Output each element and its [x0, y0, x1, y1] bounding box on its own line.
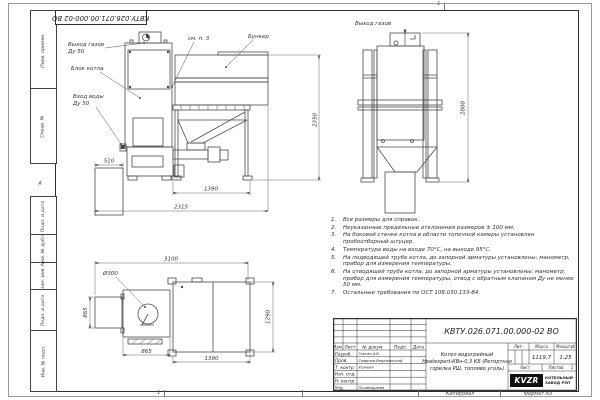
dim-1290: 1290	[266, 310, 272, 324]
note-item: 3.На боковой стенке котла в области топо…	[331, 232, 578, 245]
note-item: 4.Температура воды на входе 70°С, на вых…	[331, 247, 578, 254]
col-list: Лист	[344, 344, 356, 350]
zone-marker-bottom: 1	[157, 390, 161, 396]
note-item: 7.Остальные требования по ОСТ 108.030.13…	[331, 290, 578, 297]
col-sign: Подп.	[394, 344, 407, 350]
frame-cell-podp-data-2: Подп. и дата	[30, 289, 57, 332]
frame-label: Подп. и дата	[41, 295, 46, 326]
product-name-1: Котел водогрейный	[441, 352, 494, 358]
note-number: 4.	[331, 247, 343, 254]
frame-cell-vzam-inv: Взам. инв. №	[30, 262, 57, 291]
doc-number-rotated-box: КВТУ.026.071.00.000-02 ВО	[55, 10, 147, 25]
label-water-in-dn: Ду 50	[72, 101, 90, 107]
dim-1390-plan: 1390	[205, 356, 219, 362]
note-text: Все размеры для справок.	[343, 217, 578, 224]
note-number: 5.	[331, 255, 343, 268]
bottom-margin-tick	[418, 390, 419, 397]
row-label-tkontr: Т. контр.	[335, 365, 355, 371]
label-see-note: см. п. 3	[188, 36, 210, 42]
dim-1390: 1390	[204, 187, 218, 193]
kvzr-logo-text: KVZR	[514, 376, 538, 385]
zone-tick-bottom	[164, 390, 165, 397]
scale-value: 1:25	[559, 355, 572, 361]
note-item: 2.Неуказанные предельные отклонения разм…	[331, 225, 578, 232]
fan-icon	[146, 34, 150, 39]
frame-cell-inv-podl: Инв. № подл.	[30, 330, 57, 392]
bottom-margin-tick	[500, 390, 501, 397]
note-item: 6.На отводящей трубе котла, до запорной …	[331, 269, 578, 289]
label-gas-out: Выход газов	[68, 42, 104, 48]
frame-label: Подп. и дата	[41, 200, 46, 231]
col-izm: Изм.	[333, 344, 343, 350]
label-gas-out-dn: Ду 50	[67, 49, 85, 55]
note-number: 3.	[331, 232, 343, 245]
front-view-texts: 510 1390 2315 2350 Выход газов Ду 50 Бло…	[67, 34, 319, 211]
front-view-drawing	[95, 32, 268, 215]
label-boiler-block: Блок котла	[71, 66, 104, 72]
note-text: На отводящей трубе котла, до запорной ар…	[343, 269, 578, 289]
label-water-in: Вход воды	[73, 94, 104, 100]
frame-label: Взам. инв. №	[41, 261, 46, 292]
label-bunker: Бункер	[248, 34, 269, 40]
col-doc: № докум.	[361, 344, 383, 350]
dim-2800: 2800	[461, 101, 467, 115]
zone-marker-top: 1	[437, 1, 441, 7]
note-text: На боковой стенке котла в области топочн…	[343, 232, 578, 245]
frame-label: Инв. № подл.	[41, 345, 46, 377]
side-view-drawing	[358, 33, 442, 213]
technical-notes: 1.Все размеры для справок. 2.Неуказанные…	[331, 217, 578, 298]
company-name-2: ЗАВОД РЭП	[545, 380, 571, 385]
row-label-razrab: Разраб.	[335, 351, 352, 357]
row-label-nachotd: Нач. отд.	[335, 372, 356, 378]
front-view: 510 1390 2315 2350 Выход газов Ду 50 Бло…	[60, 25, 340, 221]
row-label-prov: Пров.	[335, 358, 348, 364]
row-name-utv: Полиморлова	[359, 386, 385, 390]
dim-3100: 3100	[164, 257, 178, 263]
bottom-margin-tick	[302, 390, 303, 397]
plan-view-drawing	[95, 278, 254, 356]
note-number: 7.	[331, 290, 343, 297]
row-name-razrab: Гергин А.В.	[359, 352, 380, 356]
product-name-3: горелка РШ, топливо уголь)	[430, 366, 504, 372]
format-label: Формат А3	[506, 391, 570, 397]
mass-label: Масса	[535, 344, 548, 349]
sheets-label: Листов	[548, 365, 565, 370]
frame-label: Перв. примен.	[41, 33, 46, 68]
frame-label: Справ. №	[41, 115, 46, 137]
label-gas-out-side: Выход газов	[355, 21, 391, 27]
label-flue-diameter: Ø300	[102, 270, 118, 277]
scale-label: Масштаб	[556, 344, 576, 349]
frame-cell-inv-dubl: Инв. № дубл.	[30, 234, 57, 264]
zone-tick-top	[444, 3, 445, 10]
dim-2350: 2350	[313, 113, 319, 127]
side-view: Выход газов 2800	[350, 10, 480, 220]
dim-510: 510	[104, 159, 115, 165]
copied-label: Копировал	[428, 391, 492, 397]
note-item: 1.Все размеры для справок.	[331, 217, 578, 224]
frame-cell-podp-data-1: Подп. и дата	[30, 196, 57, 236]
dim-865-bottom: 865	[141, 349, 152, 355]
doc-number-rotated: КВТУ.026.071.00.000-02 ВО	[52, 14, 149, 22]
plan-view: 3100 Ø300 865 865 1390 1290	[60, 245, 350, 372]
note-text: Температура воды на входе 70°С, на выход…	[343, 247, 578, 254]
product-name-2: Heatexpert-КВн-0,3 КБ (Ретортная	[422, 359, 512, 365]
row-name-tkontr: Усачкин	[359, 366, 375, 370]
sheets-value: 1	[571, 365, 574, 370]
frame-cell-perv-primen: Перв. примен.	[30, 10, 57, 90]
note-text: Остальные требования по ОСТ 108.030.133-…	[343, 290, 578, 297]
dim-865-left: 865	[83, 307, 89, 318]
drawing-sheet: Перв. примен. Справ. № Подп. и дата Инв.…	[0, 0, 600, 400]
note-item: 5.На подводящей трубе котла, до запорной…	[331, 255, 578, 268]
frame-cell-sprav-no: Справ. №	[30, 88, 57, 164]
sheet-label: Лист	[519, 365, 531, 370]
mass-value: 1119,7	[532, 355, 552, 361]
title-doc-number: КВТУ.026.071.00.000-02 ВО	[444, 327, 558, 336]
note-number: 6.	[331, 269, 343, 289]
dim-2315: 2315	[174, 205, 188, 211]
row-name-prov: Смирнов-Вережинский	[359, 359, 403, 363]
col-date: Дата	[412, 344, 424, 350]
note-text: Неуказанные предельные отклонения размер…	[343, 225, 578, 232]
note-text: На подводящей трубе котла, до запорной а…	[343, 255, 578, 268]
plan-view-texts: 3100 Ø300 865 865 1390 1290	[83, 257, 272, 363]
note-number: 2.	[331, 225, 343, 232]
row-label-nkontr: Н. контр.	[335, 379, 356, 385]
note-number: 1.	[331, 217, 343, 224]
row-label-utv: Утв.	[335, 385, 344, 391]
kvzr-logo: KVZR	[510, 374, 543, 387]
zone-marker-left: А	[38, 181, 42, 187]
lit-label: Лит.	[513, 344, 523, 349]
